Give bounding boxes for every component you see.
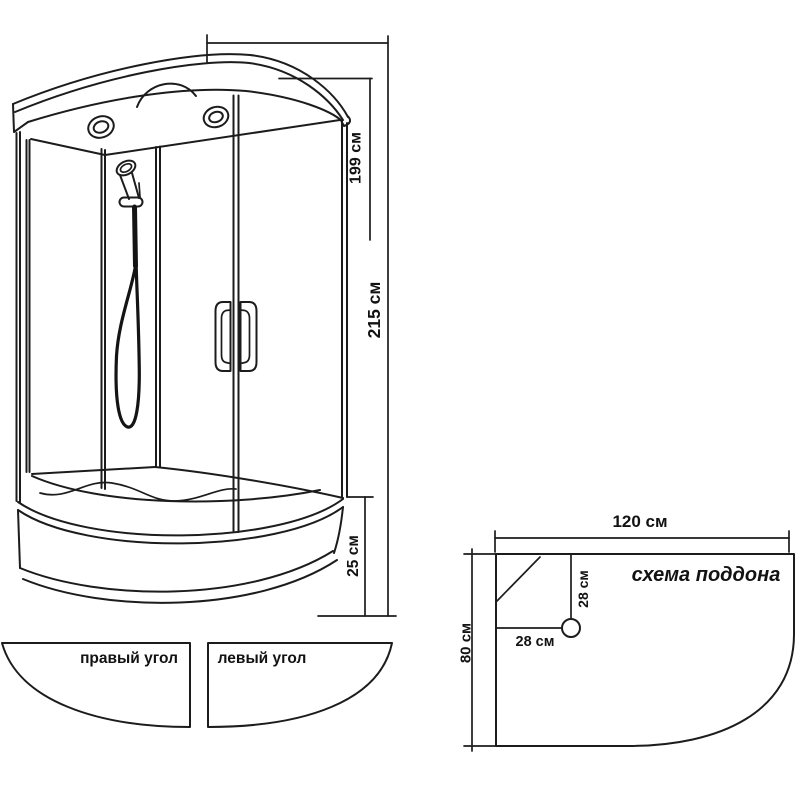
- canopy-roof: [13, 54, 350, 132]
- shower-hose-loop: [116, 266, 139, 427]
- cabin-drawing: [13, 54, 350, 603]
- dim-tray-width-label: 120 см: [612, 512, 667, 531]
- tray-scheme: схема поддона 120 см 80 см 28 см 28 см: [457, 512, 794, 751]
- apron-panels: правый угол левый угол: [2, 643, 392, 727]
- dimension-total-height: 215 см: [207, 35, 396, 616]
- left-corner-panel-label: левый угол: [218, 650, 307, 667]
- drain-position: [496, 554, 580, 637]
- drawing-canvas: 215 см 199 см 25 см правый угол левый уг…: [0, 0, 800, 800]
- spotlight-right: [201, 104, 231, 131]
- shower-cabin-technical-drawing: 215 см 199 см 25 см правый угол левый уг…: [0, 0, 800, 800]
- dim-tray-height-label: 25 см: [345, 535, 362, 577]
- drain-circle: [562, 619, 580, 637]
- shower-handset: [114, 158, 142, 428]
- dimension-tray-height: 25 см: [345, 497, 373, 616]
- right-corner-panel-label: правый угол: [80, 650, 178, 667]
- dim-height-glass-label: 199 см: [348, 132, 365, 184]
- tray-scheme-corner-diagonal: [497, 557, 540, 601]
- shower-hose-upper: [135, 207, 136, 266]
- shower-head-icon: [114, 158, 138, 179]
- dim-drain-horizontal-label: 28 см: [516, 634, 555, 650]
- cabin-dimensions: 215 см 199 см 25 см: [207, 35, 396, 616]
- shower-tray: [18, 467, 343, 603]
- spotlight-left: [85, 113, 117, 142]
- cabin-frame: [17, 96, 348, 533]
- dim-drain-vertical-label: 28 см: [575, 570, 591, 608]
- dim-height-total-label: 215 см: [364, 282, 384, 339]
- dimension-tray-width: 120 см: [495, 512, 789, 552]
- door-handle-left: [216, 302, 231, 371]
- tray-scheme-title: схема поддона: [632, 564, 781, 586]
- dimension-glass-height: 199 см: [279, 79, 372, 241]
- dimension-tray-depth: 80 см: [457, 549, 496, 751]
- dim-tray-depth-label: 80 см: [457, 623, 474, 663]
- door-handle-right: [241, 302, 257, 371]
